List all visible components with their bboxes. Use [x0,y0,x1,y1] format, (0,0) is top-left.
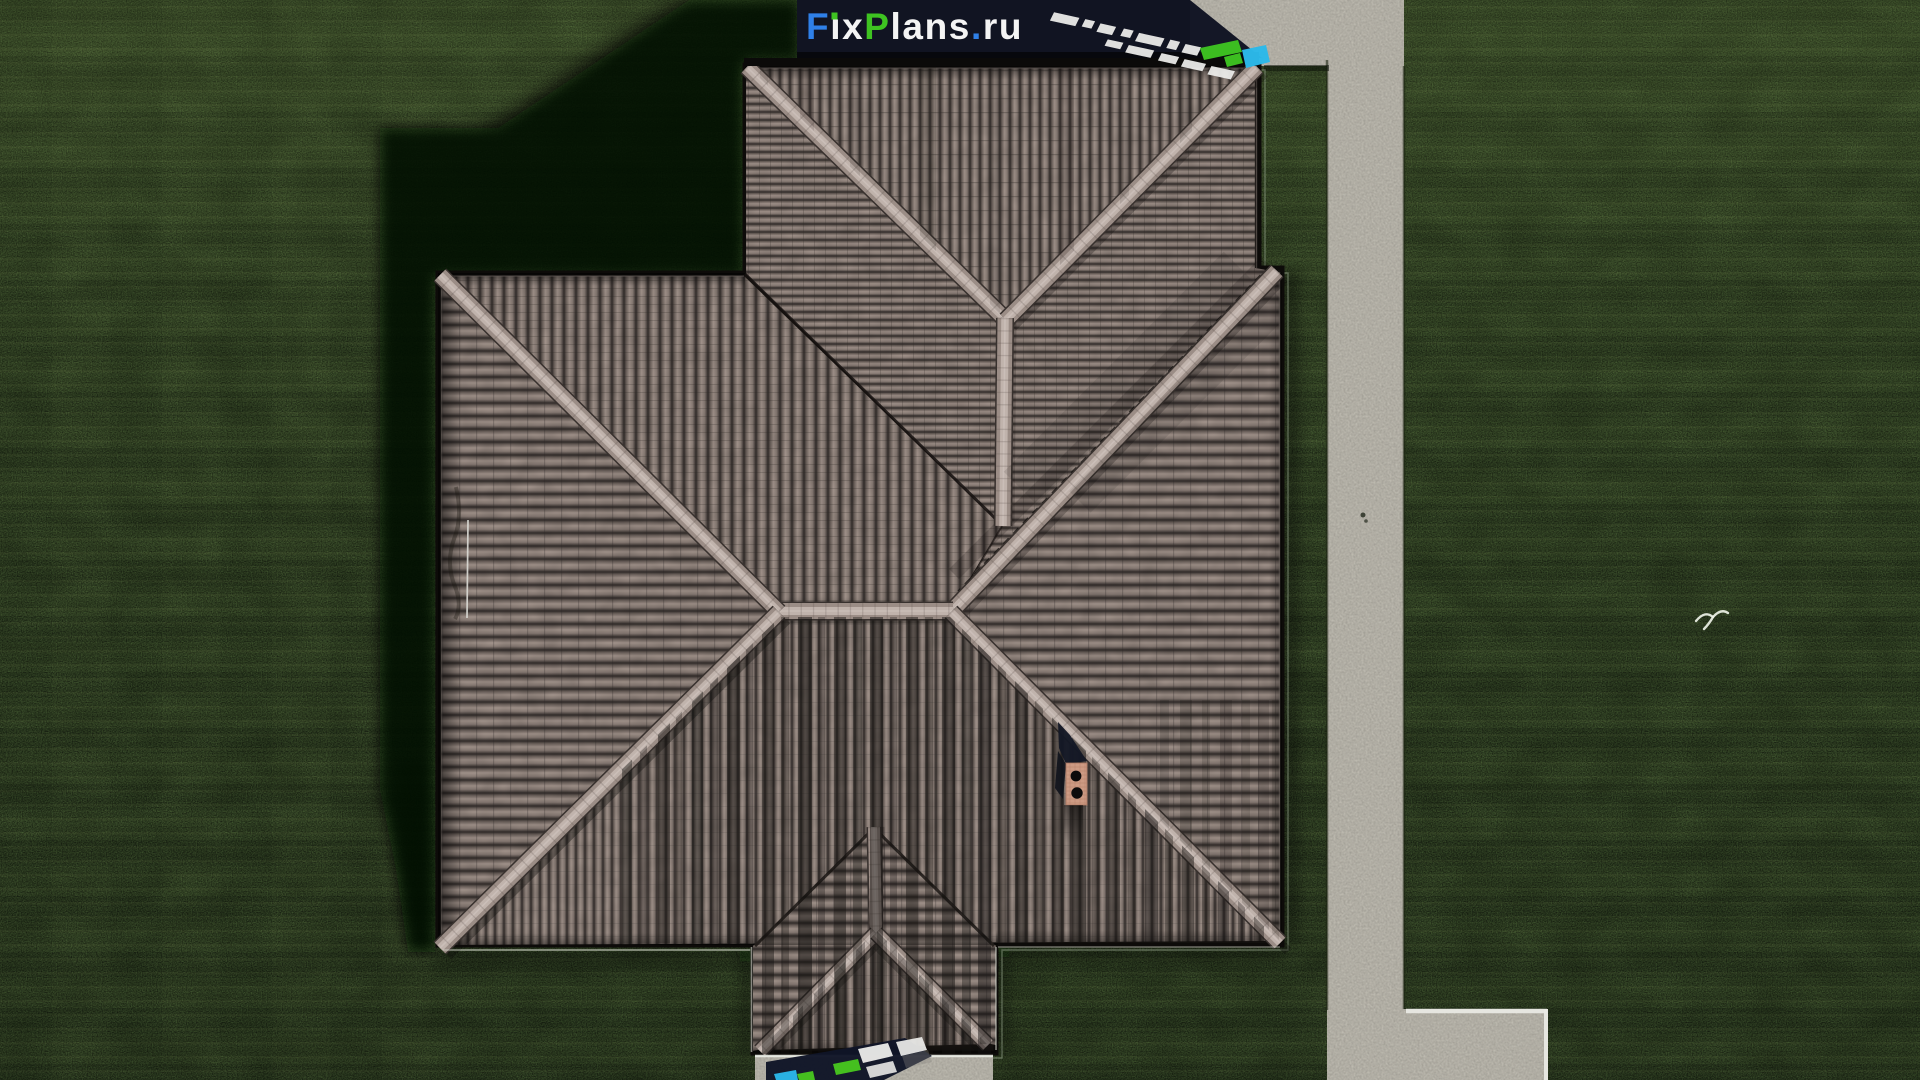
svg-text:FıxPlans.ru: FıxPlans.ru [806,6,1023,47]
